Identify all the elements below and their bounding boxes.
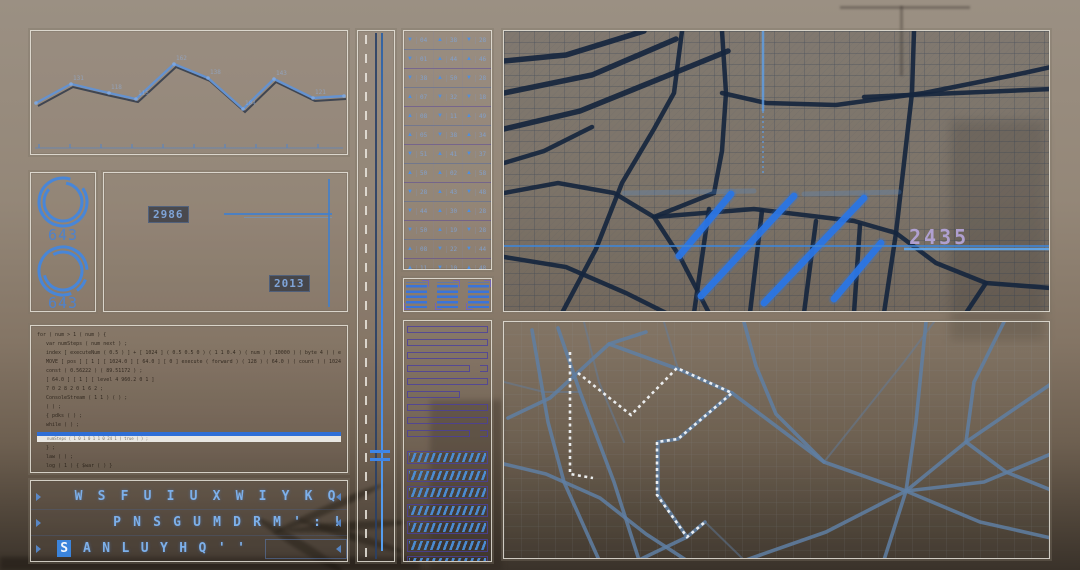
key-g[interactable]: G: [167, 515, 187, 530]
marker-bar[interactable]: [370, 450, 390, 453]
outline-bar: [407, 352, 488, 359]
metric-badge-primary: 2986: [148, 206, 189, 223]
triangle-up-icon: ▲: [437, 151, 443, 157]
highlight-bar-white: numSteps ( 1 0 1 0 1 1 0 24 1 ) true ( )…: [37, 436, 341, 442]
triangle-down-icon: ▼: [437, 132, 443, 138]
outline-bar-row: [407, 326, 488, 333]
key-i[interactable]: I: [251, 489, 274, 504]
list-item-value: 38: [446, 132, 457, 139]
triangle-up-icon: ▲: [466, 170, 472, 176]
svg-text:131: 131: [73, 75, 84, 82]
hatched-bar: [407, 539, 488, 552]
triangle-up-icon: ▲: [466, 56, 472, 62]
list-item[interactable]: ▲46: [462, 50, 491, 68]
triangle-down-icon: ▼: [437, 113, 443, 119]
triangle-down-icon: ▼: [466, 246, 472, 252]
list-item-value: 02: [446, 170, 457, 177]
code-lines: for ( num > 1 ( num ) {var numSteps ( nu…: [37, 331, 341, 473]
list-item-value: 30: [446, 208, 457, 215]
list-item[interactable]: ▼50: [404, 221, 433, 239]
triangle-down-icon: ▼: [466, 151, 472, 157]
dashed-guide-line: [365, 35, 367, 557]
hatched-bar: [407, 469, 488, 482]
svg-text:138: 138: [210, 69, 221, 76]
list-row: ▼50▲19▼28: [404, 220, 491, 239]
keyboard-row: PNSGUMDRM':!: [31, 510, 347, 536]
list-item[interactable]: ▲41: [433, 145, 462, 163]
metric-badge-secondary: 2013: [269, 275, 310, 292]
mini-blocks-panel: [403, 278, 492, 312]
triangle-up-icon: ▲: [437, 75, 443, 81]
list-row: ▼01▲44▲46: [404, 49, 491, 68]
outline-bar-row: [407, 378, 488, 385]
outline-bar-row: [407, 417, 488, 424]
list-item[interactable]: ▼28: [462, 69, 491, 87]
list-item-value: 19: [446, 227, 457, 234]
code-line: var numSteps ( num next ) ;: [37, 340, 341, 349]
list-item-value: 44: [475, 246, 486, 253]
gauge-panel: 643 643: [30, 172, 96, 312]
list-item-value: 58: [475, 170, 486, 177]
empty-key-box: [265, 539, 347, 559]
list-item[interactable]: ▼38: [404, 69, 433, 87]
list-item-value: 28: [475, 208, 486, 215]
list-row: ▼28▲43▼48: [404, 182, 491, 201]
triangle-up-icon: ▲: [437, 227, 443, 233]
metrics-panel: 2986 2013: [103, 172, 348, 312]
list-item-value: 46: [475, 56, 486, 63]
code-line: 7 0 2 8 2 0 1 6 2 ;: [37, 385, 341, 394]
outline-bar-row: [407, 365, 488, 372]
list-item-value: 34: [475, 132, 486, 139]
city-map-light[interactable]: [503, 321, 1050, 559]
svg-text:121: 121: [315, 89, 326, 96]
list-item[interactable]: ▼28: [404, 183, 433, 201]
list-item[interactable]: ▼04: [404, 31, 433, 49]
key-l[interactable]: L: [116, 541, 135, 556]
key-sym[interactable]: ': [212, 541, 231, 556]
gauge-value-top: 643: [48, 226, 78, 244]
triangle-down-icon: ▼: [466, 227, 472, 233]
marker-bar[interactable]: [370, 458, 390, 461]
code-line: // ( framed ) abject task: [37, 471, 341, 473]
triangle-up-icon: ▲: [437, 208, 443, 214]
list-item[interactable]: ▲08: [404, 107, 433, 125]
list-item[interactable]: ▼48: [462, 183, 491, 201]
outline-bar-row: [407, 404, 488, 411]
hatched-bar: [407, 486, 488, 499]
list-item[interactable]: ▼11: [433, 107, 462, 125]
row-marker-icon: [336, 519, 341, 527]
map-value-label: 2435: [909, 225, 969, 249]
list-item[interactable]: ▼37: [462, 145, 491, 163]
list-item[interactable]: ▲48: [462, 259, 491, 270]
hatched-bars: [407, 451, 488, 562]
list-item[interactable]: ▲28: [462, 202, 491, 220]
code-line: [ 64.0 ] [ 1 ] [ level 4 960.2 0 1 ]: [37, 376, 341, 385]
triangle-down-icon: ▼: [407, 56, 413, 62]
bar-end-cap: [480, 365, 488, 372]
triangle-down-icon: ▼: [437, 265, 443, 270]
list-item-value: 28: [475, 227, 486, 234]
progress-line[interactable]: [381, 33, 383, 551]
key-u[interactable]: U: [135, 541, 154, 556]
key-sym[interactable]: :: [307, 515, 327, 530]
list-item[interactable]: ▲19: [433, 221, 462, 239]
icon-grid: ▼04▲38▼28▼01▲44▲46▼38▲50▼28▲07▼32▼18▲08▼…: [404, 31, 491, 270]
list-item[interactable]: ▲08: [404, 240, 433, 258]
key-r[interactable]: R: [247, 515, 267, 530]
triangle-up-icon: ▲: [437, 56, 443, 62]
row-marker-icon: [336, 493, 341, 501]
list-row: ▲05▼38▲34: [404, 125, 491, 144]
key-s[interactable]: S: [90, 489, 113, 504]
connector-line: [224, 213, 332, 215]
hud-dashboard: 131118115162138104143121 643 643 2986 20…: [0, 0, 1080, 570]
list-item[interactable]: ▼01: [404, 50, 433, 68]
list-item[interactable]: ▲07: [404, 88, 433, 106]
list-item-value: 50: [416, 227, 427, 234]
key-u[interactable]: U: [136, 489, 159, 504]
list-item-value: 37: [475, 151, 486, 158]
city-map-dark[interactable]: 2435: [503, 30, 1050, 312]
list-item-value: 28: [475, 75, 486, 82]
code-line: MOVE [ pos ] [ 1 ] [ 1024.0 ] [ 64.0 ] […: [37, 358, 341, 367]
row-marker-icon: [336, 545, 341, 553]
list-item-value: 48: [475, 189, 486, 196]
key-s[interactable]: S: [57, 540, 71, 557]
key-i[interactable]: I: [159, 489, 182, 504]
outline-bar: [407, 430, 470, 437]
triangle-down-icon: ▼: [407, 208, 413, 214]
outline-bar-row: [407, 391, 488, 398]
list-item-value: 43: [446, 189, 457, 196]
list-row: ▲07▼32▼18: [404, 87, 491, 106]
outline-bar: [407, 326, 488, 333]
bar-end-cap: [480, 430, 488, 437]
triangle-down-icon: ▼: [437, 246, 443, 252]
list-row: ▲50▲02▲58: [404, 163, 491, 182]
list-item-value: 44: [446, 56, 457, 63]
list-item[interactable]: ▼28: [462, 221, 491, 239]
key-w[interactable]: W: [67, 489, 90, 504]
row-marker-icon: [36, 519, 41, 527]
triangle-up-icon: ▲: [466, 113, 472, 119]
list-item[interactable]: ▼44: [462, 240, 491, 258]
triangle-down-icon: ▼: [466, 75, 472, 81]
ring-gauge-top: 643: [31, 173, 95, 244]
key-s[interactable]: S: [147, 515, 167, 530]
outline-bar-row: [407, 339, 488, 346]
keyboard-row: WSFUIUXWIYKQ: [31, 484, 347, 510]
outline-bars: [407, 326, 488, 437]
triangle-down-icon: ▼: [466, 189, 472, 195]
svg-text:104: 104: [245, 100, 256, 107]
list-row: ▲08▼22▼44: [404, 239, 491, 258]
line-chart: 131118115162138104143121: [31, 31, 347, 154]
list-row: ▼44▲30▲28: [404, 201, 491, 220]
list-item-value: 04: [416, 37, 427, 44]
list-item[interactable]: ▲58: [462, 164, 491, 182]
list-item-value: 08: [416, 113, 427, 120]
list-item-value: 01: [416, 56, 427, 63]
outline-bar-row: [407, 352, 488, 359]
triangle-down-icon: ▼: [407, 189, 413, 195]
highlighted-code-row: numSteps ( 1 0 1 0 1 1 0 24 1 ) true ( )…: [37, 432, 341, 442]
row-marker-icon: [36, 545, 41, 553]
triangle-up-icon: ▲: [407, 265, 413, 270]
list-item[interactable]: ▼38: [433, 126, 462, 144]
list-item[interactable]: ▲43: [433, 183, 462, 201]
key-q[interactable]: Q: [193, 541, 212, 556]
svg-text:118: 118: [111, 84, 122, 91]
timeline-strip: [357, 30, 395, 562]
list-item-value: 38: [416, 75, 427, 82]
code-line: { pdks ( ) ;: [37, 412, 341, 421]
list-item[interactable]: ▲49: [462, 107, 491, 125]
triangle-down-icon: ▼: [437, 94, 443, 100]
list-item[interactable]: ▼28: [462, 31, 491, 49]
keyboard-row: SANLUYHQ'': [31, 536, 347, 562]
key-y[interactable]: Y: [274, 489, 297, 504]
list-item-value: 51: [416, 151, 427, 158]
data-block: [435, 280, 460, 310]
list-item[interactable]: ▲50: [433, 69, 462, 87]
list-item-value: 50: [446, 75, 457, 82]
key-a[interactable]: A: [77, 541, 96, 556]
key-rows: WSFUIUXWIYKQPNSGUMDRM':!SANLUYHQ'': [31, 484, 347, 562]
triangle-up-icon: ▲: [407, 132, 413, 138]
list-item[interactable]: ▲02: [433, 164, 462, 182]
key-sym[interactable]: ': [287, 515, 307, 530]
ring-gauge-bottom: 643: [32, 240, 94, 311]
code-line: law ( ) ;: [37, 453, 341, 462]
track-line: [375, 33, 377, 559]
list-item-value: 32: [446, 94, 457, 101]
key-u[interactable]: U: [182, 489, 205, 504]
bars-panel: [403, 320, 492, 562]
code-line: const ( 0.56222 ) ( 89.51172 ) ;: [37, 367, 341, 376]
code-line: for ( num > 1 ( num ) {: [37, 331, 341, 340]
key-f[interactable]: F: [113, 489, 136, 504]
key-n[interactable]: N: [97, 541, 116, 556]
code-line: ConsoleStream ( 1 1 ) ( ) ;: [37, 394, 341, 403]
list-item[interactable]: ▼32: [433, 88, 462, 106]
data-block: [466, 280, 491, 310]
triangle-down-icon: ▼: [466, 37, 472, 43]
list-item-value: 28: [475, 37, 486, 44]
triangle-down-icon: ▼: [466, 94, 472, 100]
gauge-value-bottom: 643: [48, 294, 78, 311]
key-m[interactable]: M: [207, 515, 227, 530]
key-u[interactable]: U: [187, 515, 207, 530]
triangle-up-icon: ▲: [466, 265, 472, 270]
keyboard-panel: WSFUIUXWIYKQPNSGUMDRM':!SANLUYHQ'': [30, 480, 348, 562]
outline-bar: [407, 404, 488, 411]
data-list-panel: ▼04▲38▼28▼01▲44▲46▼38▲50▼28▲07▼32▼18▲08▼…: [403, 30, 492, 270]
triangle-up-icon: ▲: [466, 132, 472, 138]
key-w[interactable]: W: [228, 489, 251, 504]
line-chart-panel: 131118115162138104143121: [30, 30, 348, 155]
triangle-up-icon: ▲: [407, 113, 413, 119]
triangle-up-icon: ▲: [407, 246, 413, 252]
list-item[interactable]: ▲38: [433, 31, 462, 49]
triangle-down-icon: ▼: [407, 75, 413, 81]
svg-text:143: 143: [276, 70, 287, 77]
list-item-value: 11: [416, 265, 427, 271]
list-item-value: 18: [475, 94, 486, 101]
connector-line: [244, 217, 332, 218]
list-row: ▼51▲41▼37: [404, 144, 491, 163]
list-item-value: 05: [416, 132, 427, 139]
list-item[interactable]: ▲50: [404, 164, 433, 182]
code-line: } ;: [37, 444, 341, 453]
data-block: [404, 280, 429, 310]
svg-text:162: 162: [176, 55, 187, 62]
triangle-up-icon: ▲: [407, 94, 413, 100]
code-line: log ( 1 ) { $war ( ) }: [37, 462, 341, 471]
code-line: ( ) ;: [37, 403, 341, 412]
list-item[interactable]: ▼51: [404, 145, 433, 163]
list-item[interactable]: ▲11: [404, 259, 433, 270]
triangle-up-icon: ▲: [437, 37, 443, 43]
list-row: ▲11▼10▲48: [404, 258, 491, 270]
list-item-value: 48: [475, 265, 486, 271]
list-item[interactable]: ▼18: [462, 88, 491, 106]
key-p[interactable]: P: [107, 515, 127, 530]
key-h[interactable]: H: [174, 541, 193, 556]
list-item-value: 10: [446, 265, 457, 271]
list-item[interactable]: ▲30: [433, 202, 462, 220]
list-item[interactable]: ▲44: [433, 50, 462, 68]
list-row: ▲08▼11▲49: [404, 106, 491, 125]
svg-text:115: 115: [138, 90, 149, 97]
triangle-down-icon: ▼: [407, 151, 413, 157]
triangle-up-icon: ▲: [407, 170, 413, 176]
key-y[interactable]: Y: [154, 541, 173, 556]
outline-bar: [407, 365, 470, 372]
key-k[interactable]: K: [297, 489, 320, 504]
outline-bar: [407, 391, 460, 398]
code-line: index [ executeNum ( 0.5 ) ] + [ 1024 ] …: [37, 349, 341, 358]
outline-bar-row: [407, 430, 488, 437]
list-item[interactable]: ▲34: [462, 126, 491, 144]
list-item[interactable]: ▼22: [433, 240, 462, 258]
hatched-bar: [407, 504, 488, 517]
outline-bar: [407, 417, 488, 424]
hatched-bar: [407, 556, 488, 562]
triangle-up-icon: ▲: [437, 170, 443, 176]
list-item-value: 49: [475, 113, 486, 120]
key-d[interactable]: D: [227, 515, 247, 530]
code-panel: for ( num > 1 ( num ) {var numSteps ( nu…: [30, 325, 348, 473]
list-item[interactable]: ▼10: [433, 259, 462, 270]
list-item-value: 22: [446, 246, 457, 253]
code-line: while ( ) ;: [37, 421, 341, 430]
hatched-bar: [407, 451, 488, 464]
hatched-bar: [407, 521, 488, 534]
triangle-up-icon: ▲: [437, 189, 443, 195]
list-item-value: 38: [446, 37, 457, 44]
outline-bar: [407, 378, 488, 385]
list-item-value: 41: [446, 151, 457, 158]
list-item-value: 08: [416, 246, 427, 253]
key-n[interactable]: N: [127, 515, 147, 530]
list-item-value: 11: [446, 113, 457, 120]
list-item-value: 50: [416, 170, 427, 177]
list-item-value: 07: [416, 94, 427, 101]
connector-line: [328, 179, 330, 307]
key-x[interactable]: X: [205, 489, 228, 504]
key-sym[interactable]: ': [231, 541, 250, 556]
triangle-down-icon: ▼: [407, 37, 413, 43]
list-item[interactable]: ▼44: [404, 202, 433, 220]
crane-silhouette: [840, 6, 970, 9]
list-item[interactable]: ▲05: [404, 126, 433, 144]
list-item-value: 44: [416, 208, 427, 215]
triangle-up-icon: ▲: [466, 208, 472, 214]
list-row: ▼38▲50▼28: [404, 68, 491, 87]
row-marker-icon: [36, 493, 41, 501]
triangle-down-icon: ▼: [407, 227, 413, 233]
list-item-value: 28: [416, 189, 427, 196]
key-m[interactable]: M: [267, 515, 287, 530]
outline-bar: [407, 339, 488, 346]
list-row: ▼04▲38▼28: [404, 31, 491, 49]
